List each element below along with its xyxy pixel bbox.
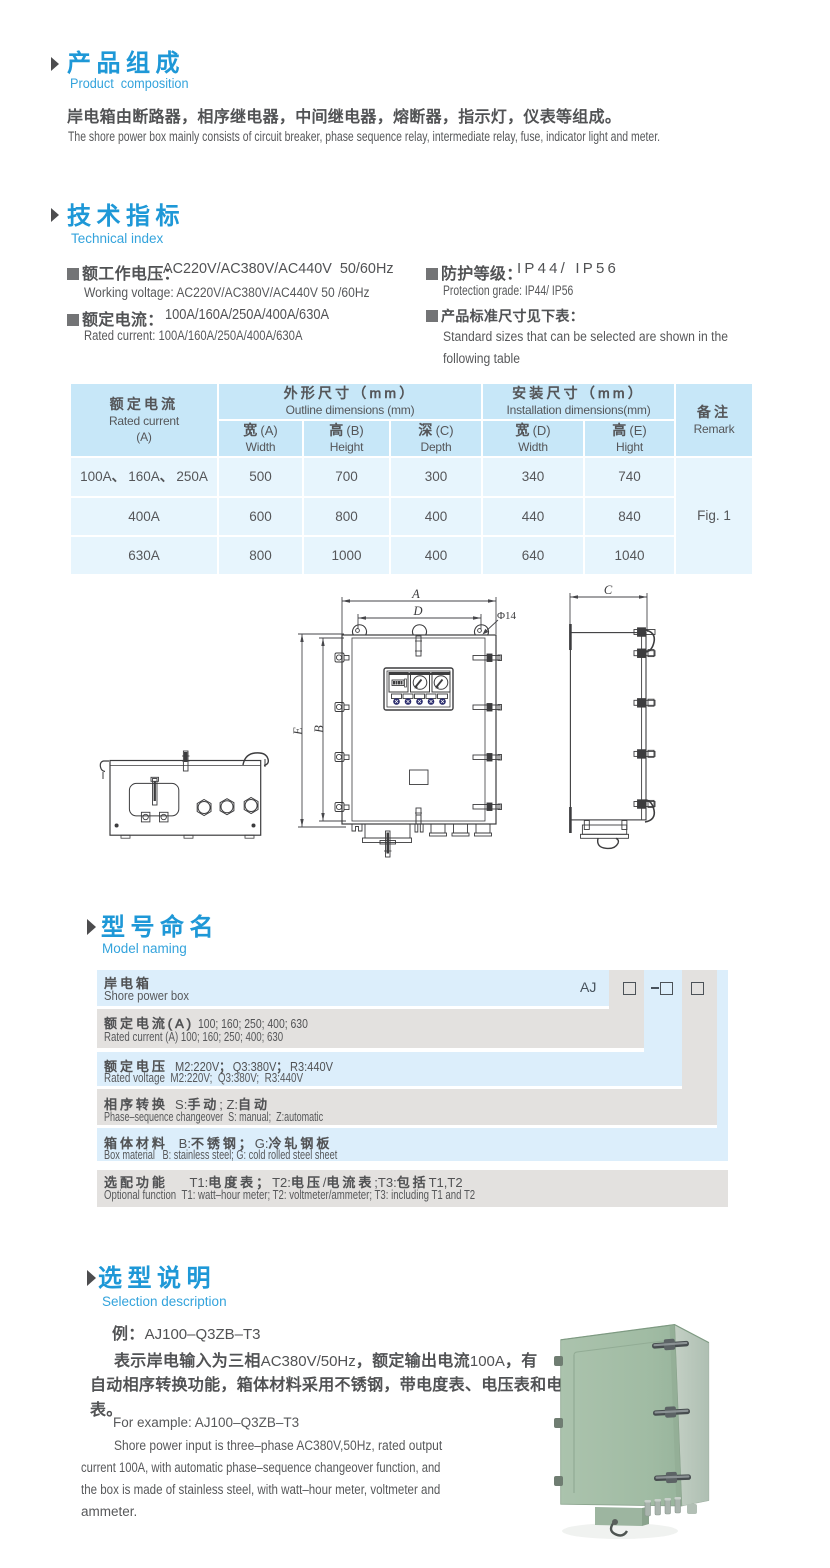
svg-text:Φ14: Φ14 xyxy=(497,610,517,622)
svg-text:A: A xyxy=(411,587,420,601)
svg-text:E: E xyxy=(291,727,305,736)
svg-text:C: C xyxy=(604,585,613,597)
svg-text:D: D xyxy=(412,604,422,618)
svg-text:B: B xyxy=(312,725,326,733)
